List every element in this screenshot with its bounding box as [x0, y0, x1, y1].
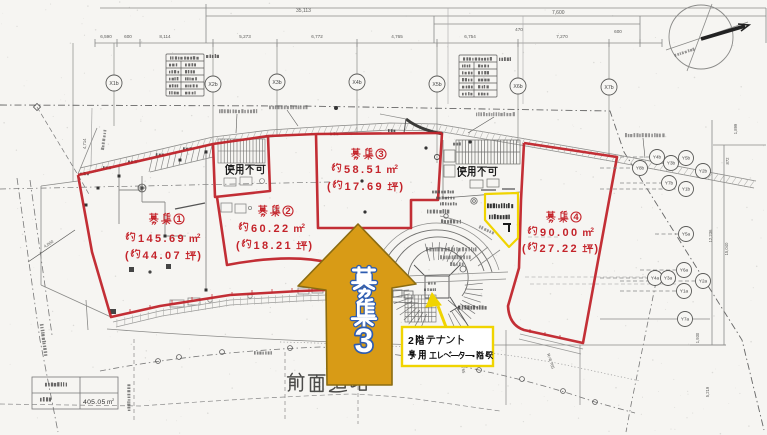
svg-text:): )	[197, 250, 201, 262]
svg-text:X5b: X5b	[432, 82, 441, 88]
svg-text:17.69: 17.69	[345, 181, 385, 193]
svg-text:): )	[594, 243, 598, 255]
svg-text:X4b: X4b	[352, 80, 361, 86]
svg-text:27.22: 27.22	[540, 243, 580, 255]
svg-text:4: 4	[573, 212, 579, 223]
svg-text:405.05: 405.05	[83, 399, 106, 406]
svg-text:2: 2	[590, 227, 594, 234]
svg-text:12,236: 12,236	[708, 229, 713, 242]
svg-text:600: 600	[124, 34, 132, 39]
svg-text:Y4b: Y4b	[653, 155, 662, 160]
svg-text:Y2a: Y2a	[699, 279, 708, 284]
svg-text:8,114: 8,114	[159, 34, 171, 39]
svg-text:Y6a: Y6a	[680, 268, 689, 273]
svg-text:3: 3	[378, 149, 383, 160]
svg-text:X2b: X2b	[208, 82, 217, 88]
svg-text:35,113: 35,113	[296, 8, 311, 14]
svg-text:Y5b: Y5b	[682, 156, 691, 161]
svg-text:5,273: 5,273	[239, 34, 251, 39]
svg-text:): )	[399, 181, 403, 193]
svg-text:6,772: 6,772	[311, 34, 323, 39]
svg-text:): )	[308, 240, 312, 252]
svg-text:58.51: 58.51	[344, 164, 384, 176]
svg-text:44.07: 44.07	[143, 250, 183, 262]
svg-text:2: 2	[394, 164, 398, 171]
svg-text:6,590: 6,590	[100, 34, 112, 39]
svg-text:6,754: 6,754	[464, 34, 476, 39]
svg-text:1,899: 1,899	[733, 123, 738, 134]
svg-text:X6b: X6b	[513, 84, 522, 90]
svg-text:4,765: 4,765	[391, 34, 403, 39]
svg-text:7,600: 7,600	[552, 10, 565, 16]
svg-text:1,930: 1,930	[695, 332, 700, 343]
svg-text:Y7a: Y7a	[681, 317, 690, 322]
svg-text:5,219: 5,219	[705, 386, 710, 397]
svg-text:3: 3	[355, 322, 374, 360]
svg-text:X3b: X3b	[272, 80, 281, 86]
svg-text:2: 2	[285, 206, 290, 217]
svg-text:(: (	[327, 181, 331, 193]
svg-text:(: (	[125, 250, 129, 262]
svg-text:7,270: 7,270	[556, 34, 568, 39]
svg-text:18.21: 18.21	[254, 240, 294, 252]
svg-text:90.00: 90.00	[540, 227, 580, 239]
svg-text:Y8b: Y8b	[636, 166, 645, 171]
svg-text:Y5a: Y5a	[682, 232, 691, 237]
svg-text:145.69: 145.69	[138, 233, 186, 245]
svg-text:2: 2	[301, 223, 305, 230]
svg-text:Y3b: Y3b	[667, 161, 676, 166]
svg-text:Y2b: Y2b	[699, 169, 708, 174]
svg-text:Y4a: Y4a	[651, 276, 660, 281]
svg-text:Y1a: Y1a	[680, 289, 689, 294]
svg-text:(: (	[236, 240, 240, 252]
svg-text:Y7b: Y7b	[665, 181, 674, 186]
svg-text:X1b: X1b	[109, 81, 118, 87]
svg-text:872: 872	[725, 157, 730, 165]
svg-text:Y1b: Y1b	[682, 187, 691, 192]
svg-text:60.22: 60.22	[251, 223, 291, 235]
svg-text:2: 2	[408, 335, 414, 347]
svg-text:2: 2	[197, 233, 201, 240]
svg-text:470: 470	[515, 27, 523, 32]
svg-text:15,040: 15,040	[724, 242, 729, 255]
svg-text:Y3a: Y3a	[664, 276, 673, 281]
svg-text:(: (	[522, 243, 526, 255]
svg-text:4,714: 4,714	[82, 138, 87, 149]
svg-text:1: 1	[176, 214, 182, 225]
svg-text:600: 600	[614, 29, 622, 34]
svg-text:X7b: X7b	[604, 85, 613, 91]
